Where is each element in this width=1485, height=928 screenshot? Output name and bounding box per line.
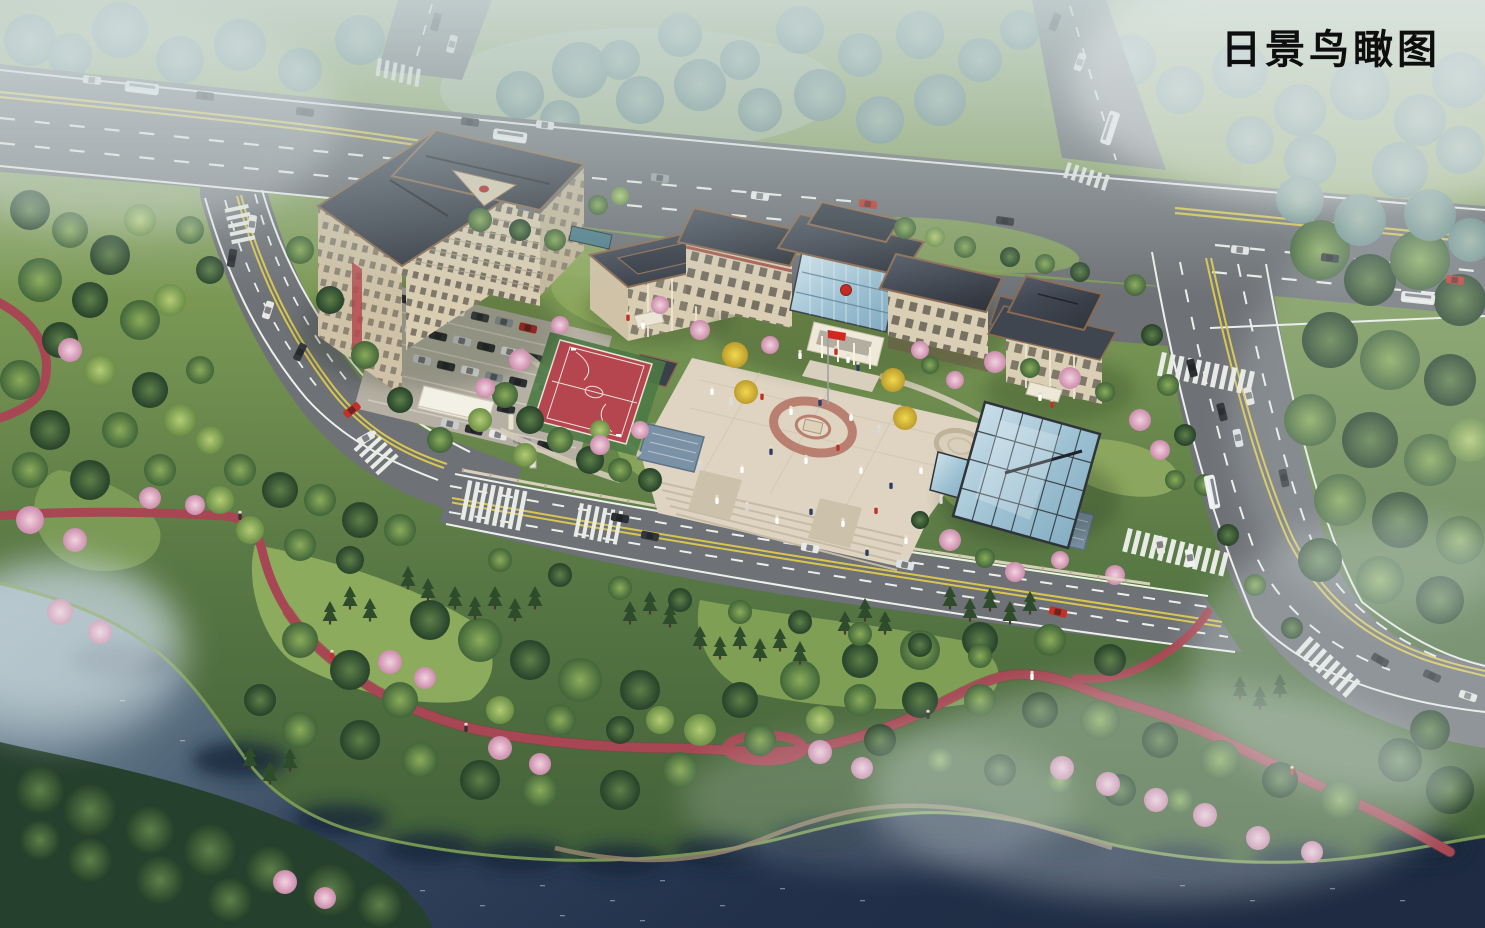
- aerial-rendering: [0, 0, 1485, 928]
- page-title: 日景鸟瞰图: [1221, 30, 1441, 70]
- rendering-canvas: 日景鸟瞰图: [0, 0, 1485, 928]
